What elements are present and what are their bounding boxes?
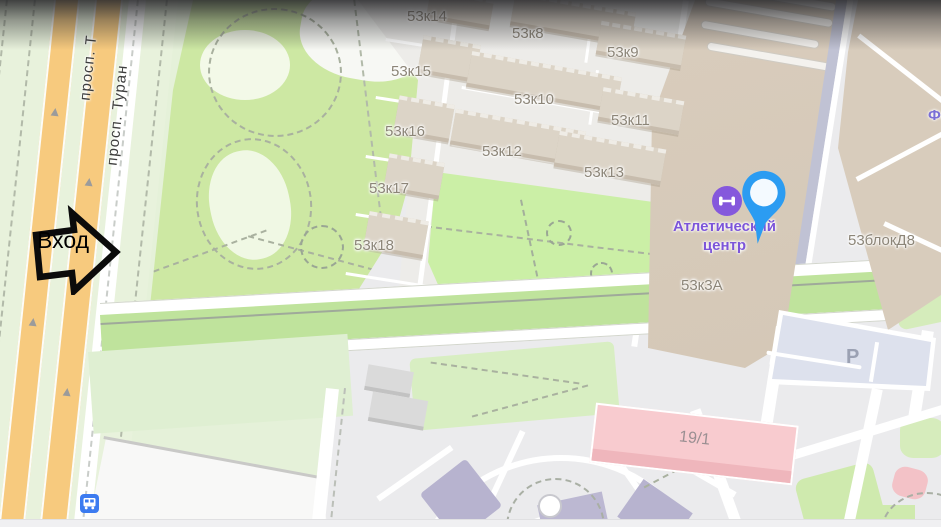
parking-icon: P (846, 346, 859, 369)
entrance-label: Вход (37, 227, 89, 254)
building-label: 53к9 (607, 44, 639, 61)
fountain-circle (538, 494, 562, 518)
building-label: 53к12 (482, 143, 522, 160)
gray-building (364, 364, 414, 398)
building-label: 53к18 (354, 237, 394, 254)
playground-circle (546, 220, 572, 246)
building-label: 53к15 (391, 63, 431, 80)
building-label: 53к17 (369, 180, 409, 197)
building-label: 53к10 (514, 91, 554, 108)
bottom-edge-bar (0, 519, 941, 527)
field-path-dashed (426, 225, 664, 256)
building-label: 53к8 (512, 25, 544, 42)
roof-facet-line (856, 123, 941, 181)
building-label-blockd8: 53блокД8 (848, 232, 915, 249)
building-label: 53к11 (611, 112, 650, 129)
building-label-53k3a: 53к3А (681, 277, 723, 294)
poi-label-clipped[interactable]: Фо (928, 107, 941, 124)
traffic-arrow-icon (63, 388, 72, 397)
building-label: 53к13 (584, 164, 624, 181)
traffic-arrow-icon (29, 318, 38, 327)
roof-facet-line (857, 34, 941, 112)
traffic-arrow-icon (51, 108, 60, 117)
building-label: 53к14 (407, 8, 447, 25)
park-path-dashed-loop (187, 131, 320, 278)
entrance-annotation: Вход (28, 205, 128, 295)
building-label: 53к16 (385, 123, 425, 140)
bus-stop-icon[interactable] (80, 494, 99, 513)
traffic-arrow-icon (85, 178, 94, 187)
park-path-dashed-circle (300, 225, 344, 269)
location-pin-icon[interactable] (733, 165, 790, 250)
map-canvas[interactable]: P 19/1 53к14 53к8 53к9 53к15 53к10 53к11… (0, 0, 941, 527)
